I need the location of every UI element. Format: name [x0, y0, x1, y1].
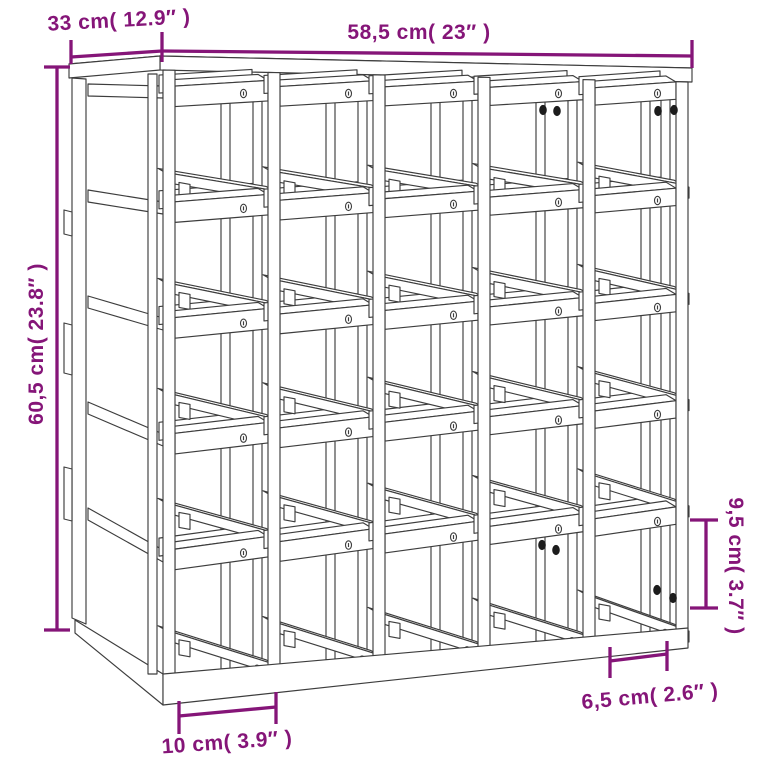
dimension-diagram: 33 cm( 12.9″ ) 58,5 cm( 23″ ) 60,5 cm( 2… [0, 0, 767, 767]
dimension-label-height: 60,5 cm( 23.8″ ) [25, 263, 49, 425]
dimension-label-width: 58,5 cm( 23″ ) [347, 21, 490, 45]
wine-rack-line-drawing [0, 0, 767, 767]
dimension-label-slot-height: 9,5 cm( 3.7″ ) [723, 497, 747, 634]
